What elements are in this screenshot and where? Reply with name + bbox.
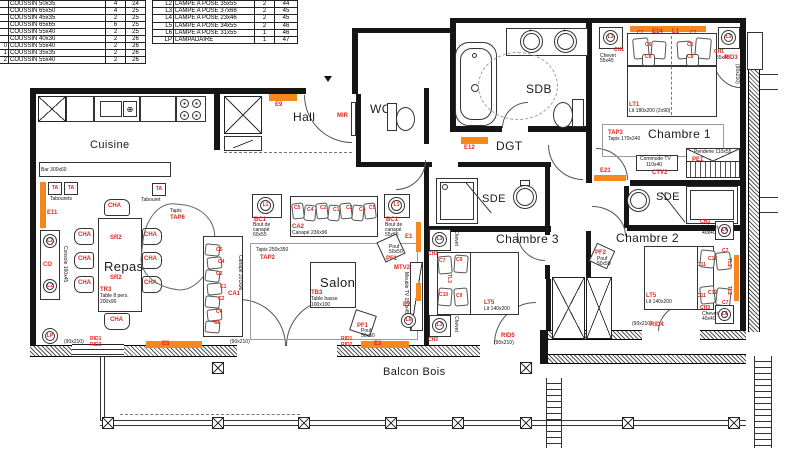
lamp-l3-icon: L3 xyxy=(721,30,736,45)
nightstand-dim: 40x40 xyxy=(702,231,716,237)
room-label-sde2: SDE xyxy=(656,191,680,203)
pillar xyxy=(747,32,763,70)
legend-cell: 44 xyxy=(275,1,298,8)
cushion-label: SR2 xyxy=(110,275,122,281)
legend-cell: L4 xyxy=(153,15,174,22)
balcony-post xyxy=(622,417,634,429)
balcony-post xyxy=(520,417,532,429)
orange-marker-e11 xyxy=(40,182,46,228)
shower-head-icon xyxy=(442,184,448,190)
label-mir: MIR xyxy=(337,113,348,119)
orange-marker-e5 xyxy=(146,341,202,348)
kitchen-unit xyxy=(66,96,94,122)
exterior-wall xyxy=(30,345,237,357)
hall-dashed-line xyxy=(224,152,352,153)
legend-cell: LP xyxy=(153,36,174,43)
legend-cell: 25 xyxy=(126,8,146,15)
legend-cell: 4 xyxy=(106,1,126,8)
chair-label: CHA xyxy=(78,280,91,286)
lamp-l3-icon: L3 xyxy=(432,232,447,247)
lamp-l2-icon: L2 xyxy=(43,279,57,293)
dresser-dim: 110x40 xyxy=(646,163,662,169)
room-label-salon: Salon xyxy=(320,275,355,290)
sink-bowl xyxy=(100,101,122,117)
room-label-sde1: SDE xyxy=(482,193,506,205)
label-e3: E3 xyxy=(374,341,381,347)
label-e2: E2 xyxy=(403,302,410,308)
legend-cell: COUSSIN 55x40 xyxy=(9,57,106,64)
legend-cell: 2 xyxy=(255,22,275,29)
door-dim-label: (90x210) xyxy=(733,64,739,92)
legend-cell: 2 xyxy=(106,43,126,50)
lamp-l6-icon: L6 xyxy=(401,313,416,328)
chair-label: CHA xyxy=(78,232,91,238)
legend-cell: LAMPE A POSE 37x68 xyxy=(174,8,255,15)
legend-cell: LAMPADAIRE xyxy=(174,36,255,43)
legend-cell: 0 xyxy=(0,43,9,50)
room-label-cuisine: Cuisine xyxy=(90,139,130,151)
cushion-label: C12 xyxy=(708,291,717,296)
legend-cell: COUSSIN 55x40 xyxy=(9,29,106,36)
cushion-label: C2 xyxy=(346,206,352,211)
cushion-label: C4 xyxy=(218,260,224,265)
cushion-label: C7 xyxy=(722,249,728,254)
legend-table-coussins: COUSSIN 50x35424COUSSIN 65x50425COUSSIN … xyxy=(0,0,146,64)
orange-marker-e1 xyxy=(416,222,421,252)
cushion-label: C9 xyxy=(456,258,462,263)
balcony-post xyxy=(452,417,464,429)
label-ch2: CH2 xyxy=(428,338,438,343)
stool: TA xyxy=(48,182,62,195)
mirror xyxy=(351,102,356,136)
cushion-label: C5 xyxy=(216,248,222,253)
label-pf1: PF1 xyxy=(386,256,397,262)
legend-cell: 46 xyxy=(275,29,298,36)
rug-label: Tapis xyxy=(170,209,182,215)
wall xyxy=(458,162,551,167)
label-e9: E9 xyxy=(275,102,282,108)
room-label-sdb: SDB xyxy=(526,82,552,96)
dimension-tick xyxy=(760,74,778,75)
orange-marker-e12 xyxy=(461,137,488,144)
legend-cell: 26 xyxy=(126,36,146,43)
legend-cell: 25 xyxy=(126,29,146,36)
ladder xyxy=(754,356,772,448)
legend-cell: 24 xyxy=(126,1,146,8)
balcony-post xyxy=(212,417,224,429)
exterior-wall xyxy=(748,70,760,332)
bathtub-tap-icon xyxy=(472,53,477,58)
kitchen-unit xyxy=(38,96,66,122)
stools-label: Tabourets xyxy=(50,197,72,203)
legend-cell: L2 xyxy=(153,1,174,8)
label-e12: E12 xyxy=(464,145,475,151)
wall xyxy=(545,265,550,279)
label-pe1: PE1 xyxy=(692,157,703,163)
bed-line xyxy=(697,246,698,310)
door-arc-wc xyxy=(396,160,426,190)
legend-cell: 2 xyxy=(106,57,126,64)
door-dim-label: (90x210) xyxy=(494,341,514,347)
cushion-label: C4 xyxy=(307,208,313,213)
wardrobe xyxy=(586,277,612,339)
rug-dim-label: Tapis 250x350 xyxy=(256,248,288,254)
pouf-dim: 50x50 xyxy=(361,334,375,340)
bed-line xyxy=(470,252,471,315)
legend-cell: LAMPE A POSE 31x55 xyxy=(174,29,255,36)
nightstand-dim: 55x45 xyxy=(600,59,614,65)
legend-cell: 1 xyxy=(255,29,275,36)
label-e5: E5 xyxy=(162,341,169,347)
label-rid2: RID2 xyxy=(341,343,352,348)
lamp-l4-icon: L4 xyxy=(718,308,731,321)
burner-icon xyxy=(180,99,189,108)
dimension-tick xyxy=(760,212,778,213)
wall xyxy=(356,94,361,166)
legend-cell xyxy=(0,22,9,29)
burner-icon xyxy=(192,99,201,108)
chair-label: CHA xyxy=(78,256,91,262)
ladder xyxy=(546,378,562,448)
wall xyxy=(545,167,550,235)
stool-label: Tabouret xyxy=(141,198,160,204)
pouf-dim: 50x50 xyxy=(597,262,611,268)
cushion-label: C11 xyxy=(697,294,706,299)
chair-label: CHA xyxy=(108,203,121,209)
label-mtv2: MTV2 xyxy=(394,265,410,271)
legend-cell: 2 xyxy=(0,57,9,64)
legend-cell: 2 xyxy=(255,1,275,8)
legend-cell: 2 xyxy=(106,36,126,43)
tap-icon: + xyxy=(563,29,566,35)
balcony-post xyxy=(728,417,740,429)
lamp-l1-icon: L1 xyxy=(257,197,274,214)
cushion-label: C5 xyxy=(369,206,375,211)
shower-inner xyxy=(690,190,734,220)
orange-marker-e2 xyxy=(416,283,421,301)
room-label-dgt: DGT xyxy=(496,139,523,153)
label-rid3: RID3 xyxy=(724,55,738,61)
balcony-post xyxy=(520,362,532,374)
legend-cell: L3 xyxy=(153,8,174,15)
legend-cell: LAMPE A POSE 23x46 xyxy=(174,15,255,22)
legend-cell xyxy=(0,1,9,8)
legend-cell: L5 xyxy=(153,22,174,29)
room-label-chambre2: Chambre 2 xyxy=(616,231,679,245)
balcony-rail xyxy=(100,357,105,423)
cushion-label: C8 xyxy=(645,55,651,60)
wall xyxy=(540,330,548,364)
balcony-post xyxy=(212,362,224,374)
pouf-dim: 50x50 xyxy=(389,250,403,256)
bed-center-line xyxy=(671,36,672,115)
kitchen-unit xyxy=(140,96,176,122)
dimension-tick xyxy=(760,89,778,90)
lamp-l4-icon: L4 xyxy=(718,224,731,237)
legend-cell: 2 xyxy=(106,15,126,22)
cushion-label: C2 xyxy=(216,272,222,277)
rug-dim-label: Tapis 170x240 xyxy=(608,137,640,143)
side-table-dim: 60x55 xyxy=(253,233,267,239)
wall xyxy=(352,28,456,33)
room-label-hall: Hall xyxy=(293,110,315,124)
tap-icon xyxy=(520,180,530,186)
cushion-label: SR2 xyxy=(110,235,122,241)
legend-cell xyxy=(0,8,9,15)
label-e11: E11 xyxy=(47,210,57,216)
lamp-l3-icon: L3 xyxy=(432,318,447,333)
chair-label: CHA xyxy=(110,317,123,323)
door-dim-label: (90x210) xyxy=(230,340,250,346)
sofa-dim-label: Canapé 201x96 xyxy=(236,255,242,313)
wall xyxy=(450,126,502,132)
legend-cell: 47 xyxy=(275,36,298,43)
orange-marker xyxy=(734,255,739,301)
toilet-bowl xyxy=(396,107,415,131)
legend-cell: COUSSIN 55x40 xyxy=(9,43,106,50)
cushion-label: C5 xyxy=(214,321,220,326)
burner-icon xyxy=(192,111,201,120)
label-e21: E21 xyxy=(600,168,611,174)
cushion-label: C6 xyxy=(645,43,651,48)
wall xyxy=(30,88,36,357)
bed-dim-label: Lit 140x200 xyxy=(646,300,672,306)
legend-table-lampes: L2LAMPE A POSE 35x55244L3LAMPE A POSE 37… xyxy=(152,0,298,44)
wall xyxy=(424,88,429,144)
cushion-label: C2 xyxy=(218,297,224,302)
legend-cell: 2 xyxy=(106,29,126,36)
legend-cell xyxy=(0,36,9,43)
legend-cell: 26 xyxy=(126,43,146,50)
legend-cell: 2 xyxy=(106,50,126,57)
nightstand-dim: 40x40 xyxy=(702,317,716,323)
legend-cell: COUSSIN 40x30 xyxy=(9,36,106,43)
wall xyxy=(352,28,358,94)
cushion-label: TL2 xyxy=(726,286,731,300)
label-tap6: TAP6 xyxy=(170,215,185,221)
cushion-label: C5 xyxy=(294,206,300,211)
legend-cell: COUSSIN 65x50 xyxy=(9,8,106,15)
cushion-label: C7 xyxy=(439,259,445,264)
wardrobe xyxy=(552,277,585,339)
legend-cell: 26 xyxy=(126,57,146,64)
cushion-label: C6 xyxy=(687,43,693,48)
hall-cabinet xyxy=(224,136,262,151)
cushion-label: C11 xyxy=(697,263,706,268)
room-label-repas: Repas xyxy=(104,259,144,274)
label-ctv2: CTV2 xyxy=(652,170,667,176)
cushion-label: C4 xyxy=(359,208,365,213)
legend-cell: LAMPE A POSE 34x55 xyxy=(174,22,255,29)
floor-plan: COUSSIN 50x35424COUSSIN 65x50425COUSSIN … xyxy=(0,0,800,449)
legend-cell: LAMPE A POSE 35x55 xyxy=(174,1,255,8)
legend-cell: COUSSIN 45x35 xyxy=(9,15,106,22)
wall xyxy=(214,88,220,150)
legend-cell: 25 xyxy=(126,15,146,22)
bed-dim-label: Lit 140x200 xyxy=(484,307,510,313)
cushion-label: C12 xyxy=(708,257,717,262)
faucet-icon: ⊕ xyxy=(123,101,137,117)
hall-closet xyxy=(224,96,262,134)
wall xyxy=(740,18,746,336)
wall xyxy=(30,88,220,94)
legend-cell: COUSSIN 50x35 xyxy=(9,1,106,8)
coffee-table-dim: 100x100 xyxy=(311,303,330,309)
cushion-label: TL3 xyxy=(446,274,451,288)
table-dim-label: 200x90 xyxy=(100,300,116,306)
wall xyxy=(454,18,742,23)
label-e1: E1 xyxy=(405,234,412,240)
cushion-label: TL2 xyxy=(726,258,731,272)
cushion-label: C10 xyxy=(439,293,448,298)
legend-cell: 1 xyxy=(0,50,9,57)
legend-cell: 2 xyxy=(255,15,275,22)
label-rid5: RID5 xyxy=(501,333,515,339)
hangers-icon xyxy=(690,162,736,177)
door-dim-label: (90x210) xyxy=(632,322,652,328)
dimension-tick xyxy=(760,197,778,198)
legend-cell: 45 xyxy=(275,15,298,22)
legend-cell: 2 xyxy=(255,8,275,15)
orange-marker-e3 xyxy=(361,341,409,348)
orange-marker-e9 xyxy=(269,94,297,101)
bed-dim-label: Lit 180x200 (2x90) xyxy=(629,109,670,115)
legend-cell: 6 xyxy=(106,22,126,29)
balcony-dashed-line xyxy=(120,414,300,415)
floor-lamp-icon: LP xyxy=(42,328,58,344)
balcony-post xyxy=(298,417,310,429)
cushion-label: C9 xyxy=(456,294,462,299)
nightstand-label: Chevet xyxy=(452,316,458,338)
balcony-post xyxy=(385,417,397,429)
balcony-rail xyxy=(100,420,746,426)
washbasin-icon xyxy=(627,189,650,212)
legend-cell: L6 xyxy=(153,29,174,36)
tap-icon: + xyxy=(529,29,532,35)
lamp-l2-icon: L2 xyxy=(43,234,57,248)
door-dim-label: (90x210) xyxy=(64,340,84,346)
label-rid2: RID2 xyxy=(90,343,101,348)
toilet-tank xyxy=(572,99,584,127)
stool: TA xyxy=(152,183,166,196)
lamp-l3-icon: L3 xyxy=(603,30,618,45)
door-arc-dgt xyxy=(548,145,583,180)
legend-cell: COUSSIN 35x35 xyxy=(9,50,106,57)
nightstand-label: Chevet xyxy=(452,230,458,252)
balcony-post xyxy=(102,417,114,429)
legend-cell: 46 xyxy=(275,22,298,29)
burner-icon xyxy=(180,111,189,120)
console-dim-label: Console 160x45 xyxy=(61,246,67,294)
room-label-balcon: Balcon Bois xyxy=(383,366,446,378)
legend-cell: 25 xyxy=(126,22,146,29)
cushion-label: C1 xyxy=(333,208,339,213)
cushion-label: C8 xyxy=(687,55,693,60)
legend-cell: 45 xyxy=(275,8,298,15)
legend-cell: COUSSIN 65x65 xyxy=(9,22,106,29)
entry-arrow-icon xyxy=(324,76,332,82)
label-tap2: TAP2 xyxy=(260,255,275,261)
label-rid4: RID4 xyxy=(650,322,664,328)
legend-cell xyxy=(0,15,9,22)
legend-cell: 26 xyxy=(126,50,146,57)
exterior-wall xyxy=(548,354,746,364)
room-label-chambre3: Chambre 3 xyxy=(496,232,559,246)
legend-cell: 1 xyxy=(255,36,275,43)
bar-dim-label: Bar 300x60 xyxy=(41,168,67,174)
cushion-label: C1 xyxy=(220,285,226,290)
label-co: CO xyxy=(43,262,52,268)
closet-dim-label: Penderie 110x55 xyxy=(694,150,731,156)
sofa-dim-label: Canapé 236x96 xyxy=(292,231,327,237)
legend-cell xyxy=(0,29,9,36)
orange-marker-e21 xyxy=(594,175,626,181)
stool: TA xyxy=(64,182,78,195)
toilet-bowl xyxy=(553,102,573,128)
lamp-l1-icon: L1 xyxy=(388,197,405,214)
legend-cell: 4 xyxy=(106,8,126,15)
cushion-label: C2 xyxy=(320,206,326,211)
exterior-wall xyxy=(700,330,746,340)
cushion-label: C4 xyxy=(216,310,222,315)
washbasin-icon xyxy=(513,185,537,209)
